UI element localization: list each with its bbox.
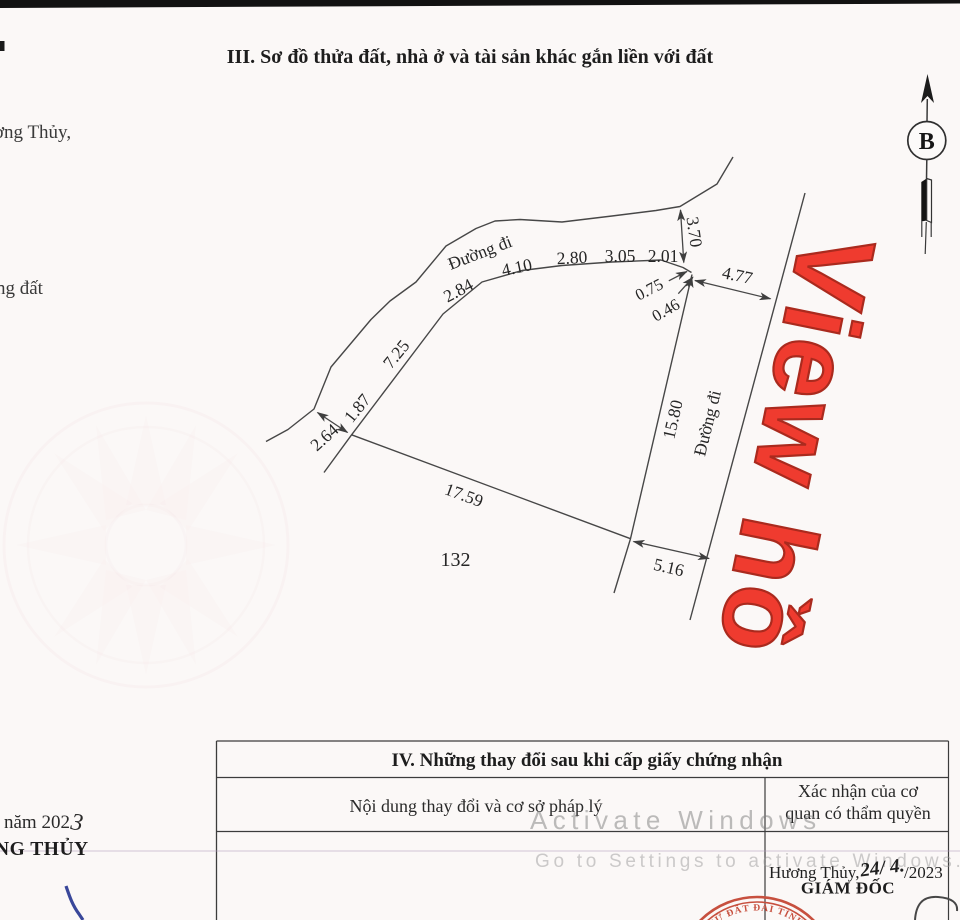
svg-text:NG THỦY: NG THỦY [0, 838, 89, 860]
svg-text:132: 132 [441, 549, 471, 571]
svg-text:Activate Windows: Activate Windows [530, 805, 822, 835]
svg-text:ơng Thủy,: ơng Thủy, [0, 122, 71, 143]
svg-text:IV. Những thay đổi sau khi cấp: IV. Những thay đổi sau khi cấp giấy chứn… [392, 750, 783, 771]
svg-text:Xác nhận của cơ: Xác nhận của cơ [798, 781, 918, 801]
svg-text:ng đất: ng đất [0, 278, 44, 299]
svg-text:III. Sơ đồ thửa đất, nhà ở và: III. Sơ đồ thửa đất, nhà ở và tài sản kh… [227, 46, 714, 68]
svg-text:B: B [919, 129, 935, 155]
svg-text:2.01: 2.01 [648, 246, 679, 266]
svg-text:GIÁM ĐỐC: GIÁM ĐỐC [801, 878, 895, 898]
svg-text:năm 202: năm 202 [4, 812, 70, 833]
svg-text:3.70: 3.70 [683, 215, 707, 248]
svg-text:2.80: 2.80 [556, 247, 588, 269]
svg-text:3.05: 3.05 [605, 246, 636, 266]
svg-text:/2023: /2023 [904, 863, 943, 882]
